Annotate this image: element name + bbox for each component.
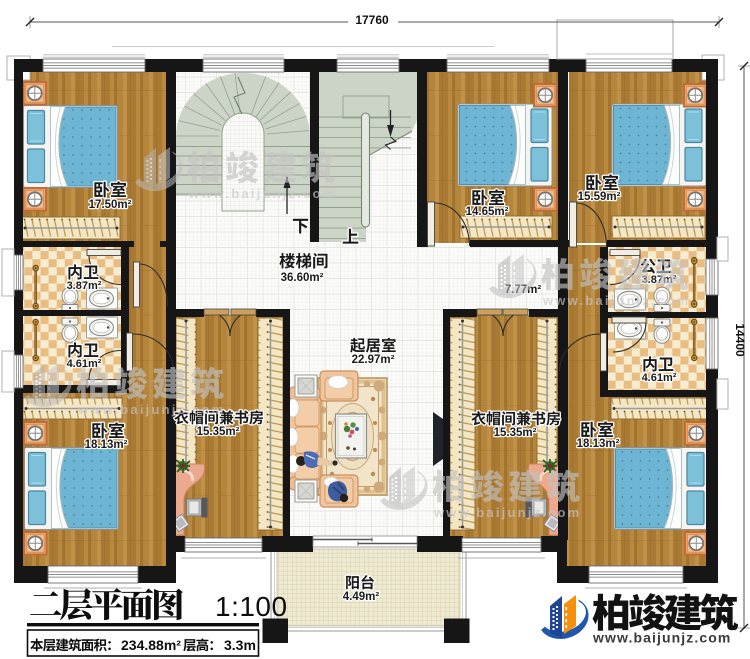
svg-text:4.49m²: 4.49m² [343,591,380,603]
svg-text:www.baijunjz.com: www.baijunjz.com [77,402,225,417]
svg-text:14400: 14400 [733,323,747,357]
svg-text:15.35m²: 15.35m² [494,427,537,439]
svg-text:17.50m²: 17.50m² [89,199,132,211]
svg-text:3.87m²: 3.87m² [67,280,102,292]
svg-text:18.13m²: 18.13m² [85,439,128,451]
svg-text:18.13m²: 18.13m² [577,438,620,450]
svg-text:www.baijunjz.com: www.baijunjz.com [188,186,336,201]
svg-text:1:100: 1:100 [215,591,288,622]
svg-text:15.35m²: 15.35m² [197,426,240,438]
svg-text:17760: 17760 [355,13,389,27]
svg-text:4.61m²: 4.61m² [642,372,677,384]
svg-text:234.88m²: 234.88m² [121,637,181,653]
svg-text:www.baijunjz.com: www.baijunjz.com [542,293,690,308]
svg-text:3.3m: 3.3m [224,637,256,653]
svg-text:www.baijunjz.com: www.baijunjz.com [433,505,581,520]
svg-text:36.60m²: 36.60m² [281,272,324,284]
svg-text:22.97m²: 22.97m² [352,354,395,366]
svg-text:15.59m²: 15.59m² [578,191,621,203]
svg-text:www.baijunjz.com: www.baijunjz.com [592,630,731,646]
svg-text:14.65m²: 14.65m² [466,206,509,218]
